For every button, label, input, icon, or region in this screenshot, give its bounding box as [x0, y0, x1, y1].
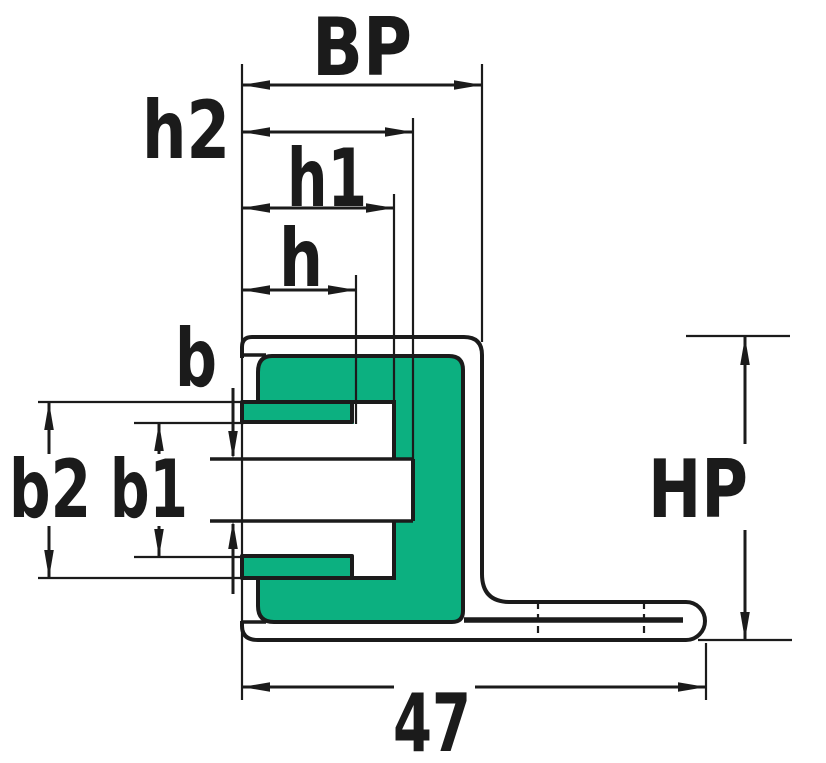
label-b: b [175, 312, 217, 405]
label-47: 47 [393, 677, 471, 763]
dim-hp-arrow-bottom [740, 612, 750, 640]
lower-lip-notch [354, 521, 392, 578]
technical-drawing-canvas: BP h2 h1 h b b2 b1 HP 47 [0, 0, 826, 763]
dim-h1-arrow-right [366, 203, 394, 213]
gasket-upper-lip [242, 402, 352, 422]
label-h: h [279, 212, 323, 305]
dim-bp-arrow-left [242, 80, 270, 90]
dim-47-arrow-right [678, 682, 706, 692]
label-bp: BP [312, 1, 412, 94]
upper-lip-notch [354, 402, 392, 459]
dim-bp-arrow-right [454, 80, 482, 90]
dim-hp-arrow-top [740, 337, 750, 365]
dim-b2-arrow-top [44, 402, 54, 430]
glass-slot [196, 459, 411, 521]
label-h2: h2 [142, 84, 230, 177]
dim-47-arrow-left [242, 682, 270, 692]
label-b1: b1 [110, 443, 188, 536]
gasket-lower-lip [242, 556, 352, 578]
label-b2: b2 [9, 443, 91, 536]
dim-h2-arrow-right [385, 127, 413, 137]
profile-drawing: BP h2 h1 h b b2 b1 HP 47 [0, 0, 826, 763]
dim-h-arrow-right [328, 285, 356, 295]
dim-b2-arrow-bottom [44, 550, 54, 578]
label-hp: HP [648, 443, 748, 536]
dim-h-arrow-left [242, 285, 270, 295]
dim-h1-arrow-left [242, 203, 270, 213]
dim-h2-arrow-left [242, 127, 270, 137]
